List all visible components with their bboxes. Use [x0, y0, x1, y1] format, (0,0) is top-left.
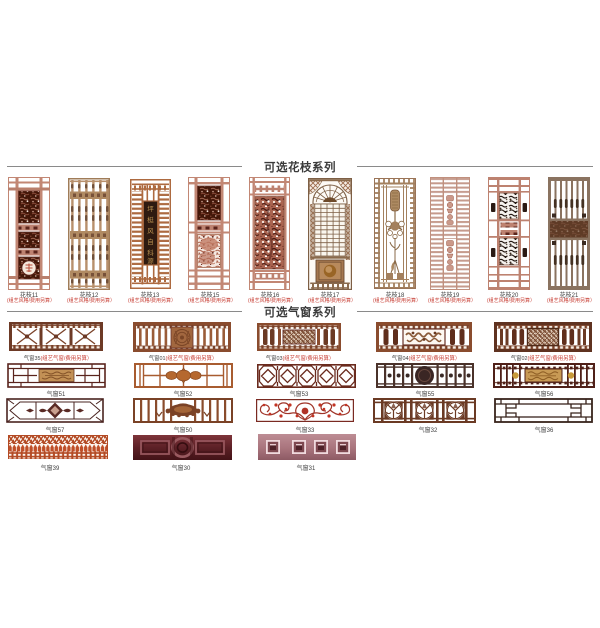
svg-text:坪: 坪: [147, 205, 154, 213]
svg-text:自: 自: [147, 237, 154, 246]
svg-text:科: 科: [147, 248, 154, 257]
svg-text:风: 风: [147, 227, 154, 235]
svg-text:梃: 梃: [147, 215, 154, 224]
svg-text:源: 源: [147, 256, 154, 265]
